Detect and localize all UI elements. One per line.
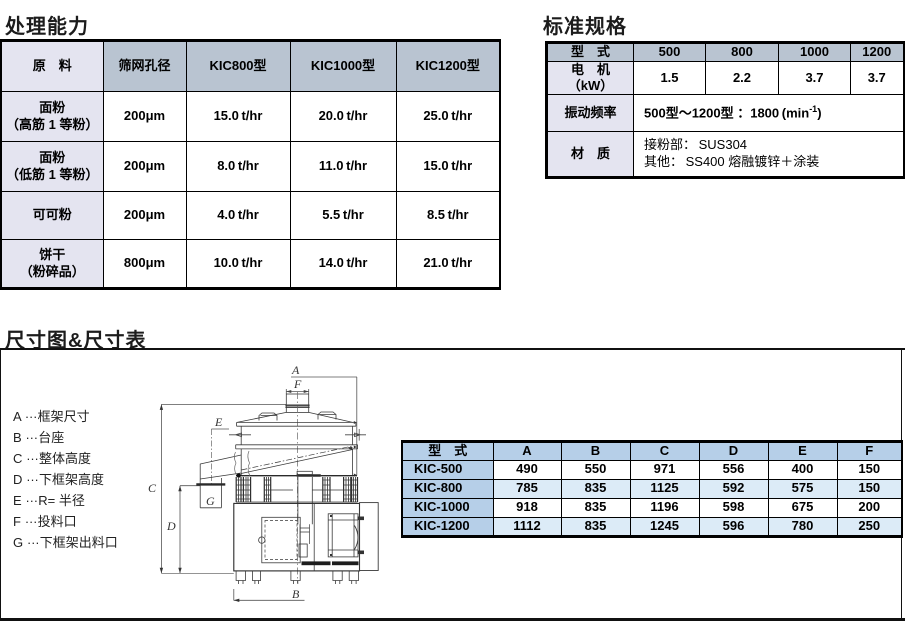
svg-text:F: F bbox=[293, 377, 302, 391]
svg-text:A: A bbox=[291, 363, 300, 377]
svg-text:B: B bbox=[292, 587, 300, 601]
svg-text:C: C bbox=[148, 481, 157, 495]
svg-text:D: D bbox=[166, 519, 176, 533]
svg-text:E: E bbox=[214, 415, 223, 429]
svg-text:G: G bbox=[206, 494, 215, 508]
